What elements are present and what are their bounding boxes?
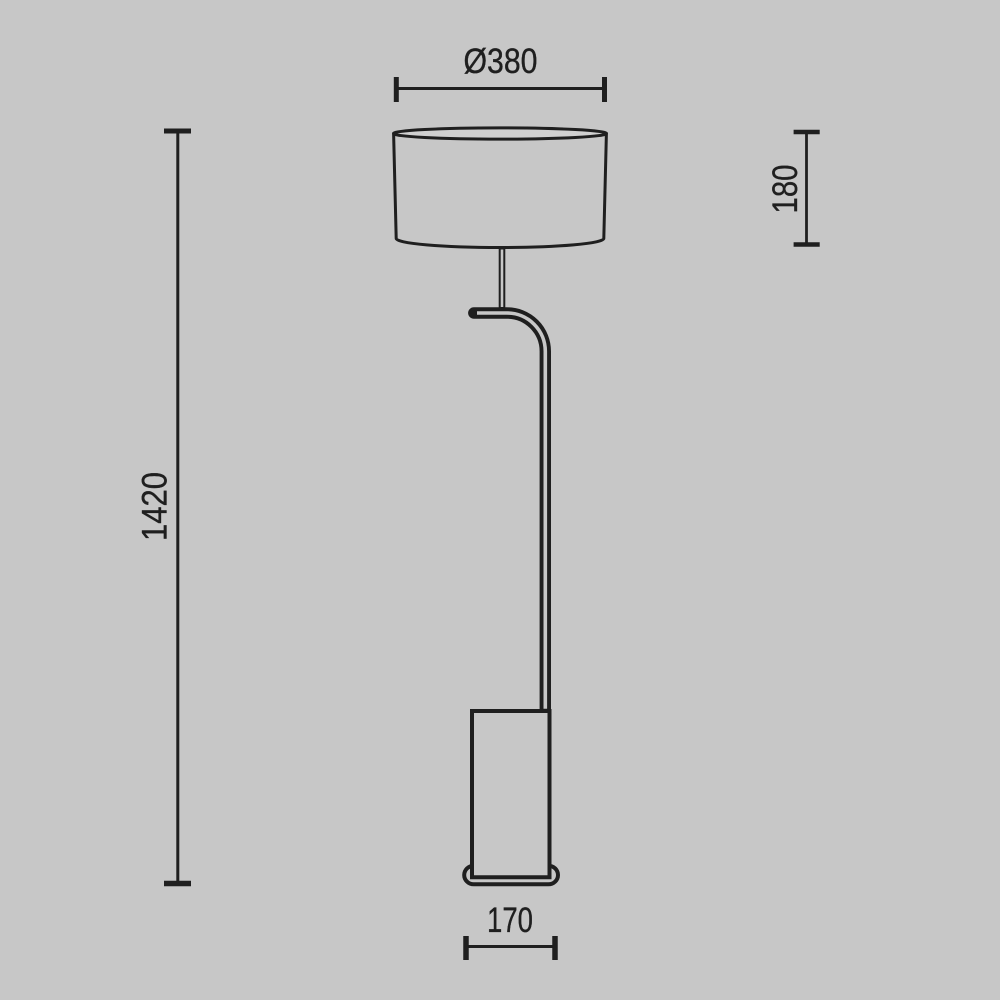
svg-text:1420: 1420 — [136, 472, 175, 541]
svg-text:170: 170 — [487, 901, 533, 940]
svg-text:180: 180 — [766, 165, 805, 214]
svg-text:Ø380: Ø380 — [464, 42, 538, 81]
